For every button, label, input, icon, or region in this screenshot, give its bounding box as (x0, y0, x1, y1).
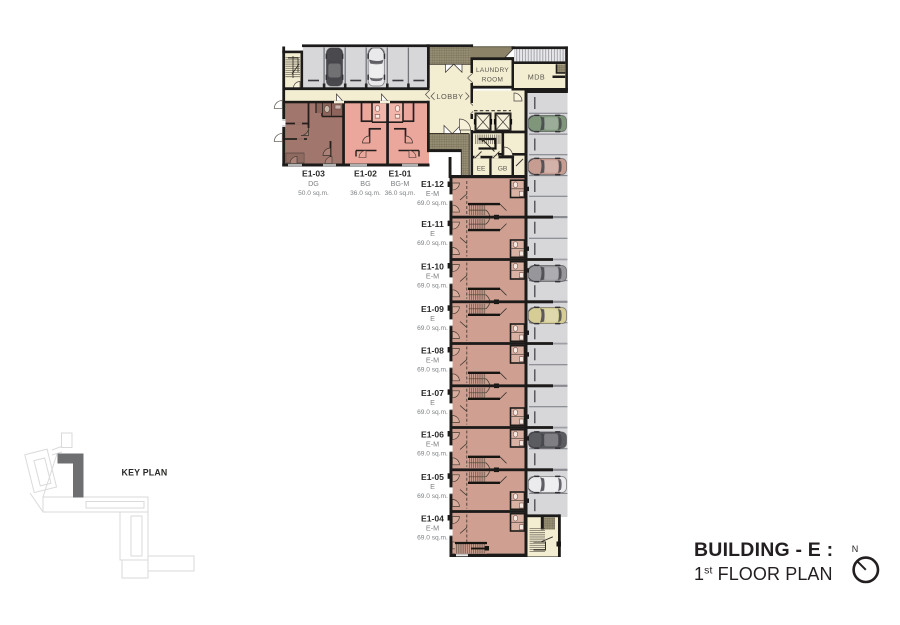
svg-text:E1-07: E1-07 (421, 388, 444, 398)
svg-text:LAUNDRY: LAUNDRY (476, 67, 509, 74)
svg-text:E1-10: E1-10 (421, 262, 444, 272)
svg-text:LOBBY: LOBBY (436, 92, 463, 101)
svg-text:E-M: E-M (426, 189, 439, 198)
svg-text:69.0 sq.m.: 69.0 sq.m. (417, 535, 448, 542)
svg-text:E1-08: E1-08 (421, 346, 444, 356)
svg-text:E1-06: E1-06 (421, 430, 444, 440)
svg-text:69.0 sq.m.: 69.0 sq.m. (417, 493, 448, 500)
svg-text:E1-02: E1-02 (354, 169, 377, 179)
svg-text:E-M: E-M (426, 440, 439, 449)
svg-text:N: N (852, 544, 859, 554)
svg-text:50.0 sq.m.: 50.0 sq.m. (298, 190, 329, 197)
svg-text:E: E (430, 482, 435, 491)
svg-text:BG-M: BG-M (391, 179, 410, 188)
svg-text:E-M: E-M (426, 524, 439, 533)
svg-text:E1-01: E1-01 (389, 169, 412, 179)
svg-text:36.0 sq.m.: 36.0 sq.m. (385, 190, 416, 197)
svg-text:69.0 sq.m.: 69.0 sq.m. (417, 283, 448, 290)
svg-text:69.0 sq.m.: 69.0 sq.m. (417, 200, 448, 207)
svg-text:E1-11: E1-11 (421, 219, 444, 229)
svg-text:MDB: MDB (528, 73, 545, 82)
svg-text:E: E (430, 398, 435, 407)
svg-text:E: E (430, 229, 435, 238)
svg-text:E1-09: E1-09 (421, 304, 444, 314)
svg-text:BG: BG (360, 179, 371, 188)
svg-text:E1-03: E1-03 (302, 169, 325, 179)
svg-text:DG: DG (308, 179, 319, 188)
svg-text:69.0 sq.m.: 69.0 sq.m. (417, 451, 448, 458)
svg-text:GB: GB (498, 166, 508, 173)
svg-text:KEY PLAN: KEY PLAN (122, 468, 168, 478)
svg-text:36.0 sq.m.: 36.0 sq.m. (350, 190, 381, 197)
svg-text:E-M: E-M (426, 272, 439, 281)
svg-text:BUILDING - E :: BUILDING - E : (694, 539, 833, 561)
svg-text:69.0 sq.m.: 69.0 sq.m. (417, 240, 448, 247)
svg-text:E1-12: E1-12 (421, 179, 444, 189)
svg-text:69.0 sq.m.: 69.0 sq.m. (417, 367, 448, 374)
svg-text:69.0 sq.m.: 69.0 sq.m. (417, 325, 448, 332)
svg-text:E1-04: E1-04 (421, 514, 444, 524)
svg-text:EE: EE (477, 166, 486, 173)
svg-text:E1-05: E1-05 (421, 472, 444, 482)
svg-text:1st FLOOR PLAN: 1st FLOOR PLAN (694, 564, 833, 584)
svg-text:69.0 sq.m.: 69.0 sq.m. (417, 409, 448, 416)
svg-text:E: E (430, 314, 435, 323)
svg-text:E-M: E-M (426, 356, 439, 365)
svg-text:ROOM: ROOM (482, 77, 503, 84)
